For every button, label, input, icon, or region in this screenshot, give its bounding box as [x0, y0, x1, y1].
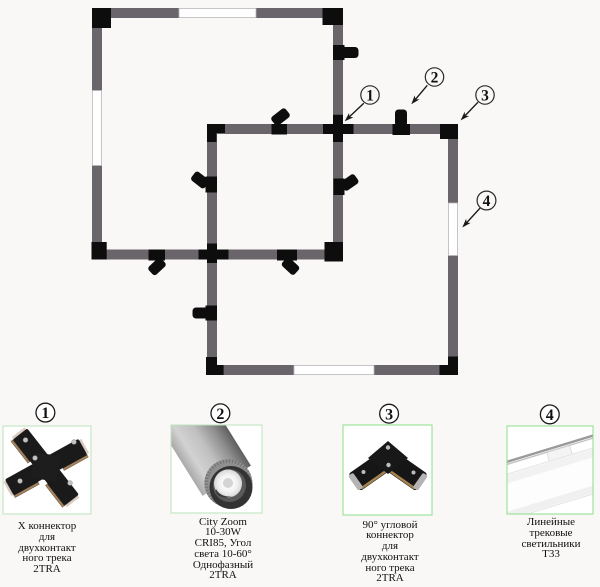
svg-text:2: 2 — [216, 406, 224, 423]
svg-text:1: 1 — [366, 88, 374, 105]
svg-text:4: 4 — [483, 193, 491, 210]
svg-text:3: 3 — [385, 406, 393, 423]
svg-text:3: 3 — [481, 88, 489, 105]
svg-text:4: 4 — [546, 407, 554, 424]
svg-text:1: 1 — [41, 405, 49, 422]
svg-text:2: 2 — [431, 70, 439, 87]
